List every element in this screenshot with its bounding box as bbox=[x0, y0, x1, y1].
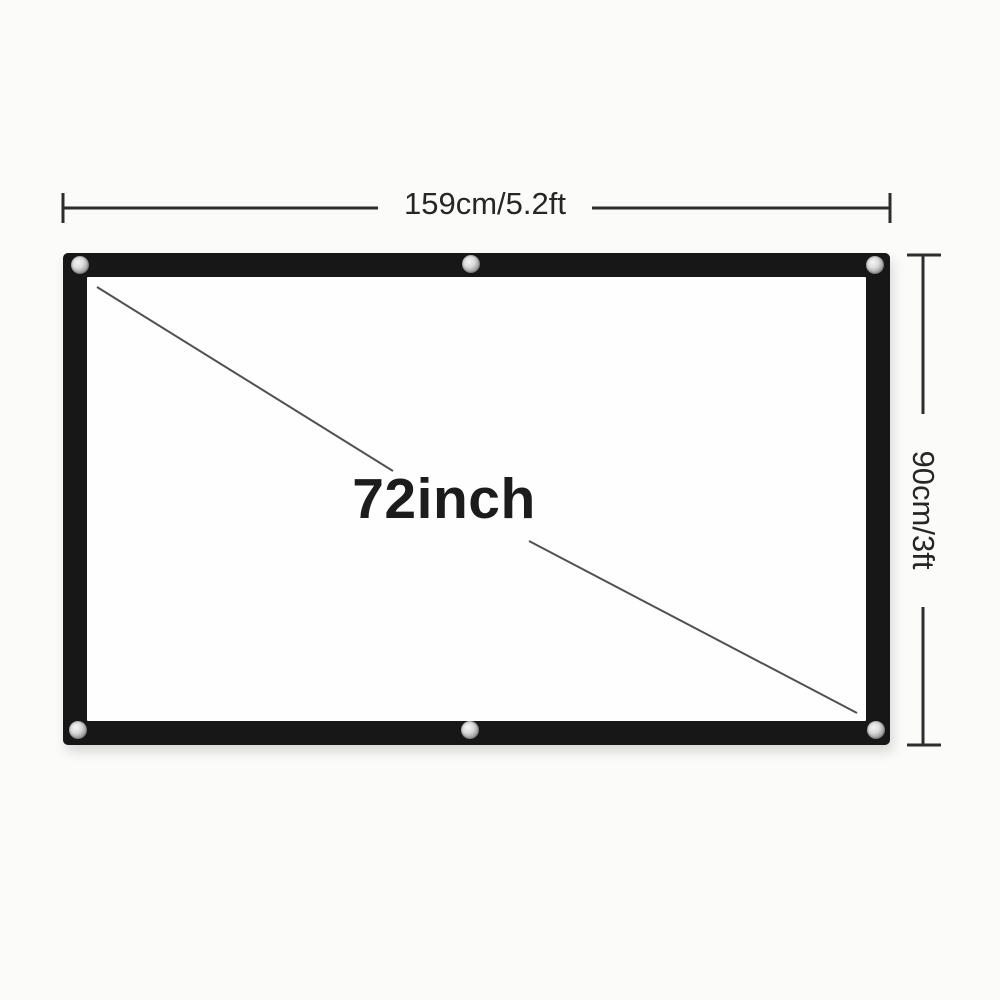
grommet-icon bbox=[866, 256, 884, 274]
grommet-icon bbox=[867, 721, 885, 739]
height-dimension-label: 90cm/3ft bbox=[905, 451, 941, 570]
grommet-icon bbox=[461, 721, 479, 739]
product-diagram: 159cm/5.2ft 90cm/3ft 72inch bbox=[0, 0, 1000, 1000]
grommet-icon bbox=[462, 255, 480, 273]
grommet-icon bbox=[71, 256, 89, 274]
grommet-icon bbox=[69, 721, 87, 739]
width-dimension-label: 159cm/5.2ft bbox=[404, 186, 566, 222]
diagonal-size-label: 72inch bbox=[352, 466, 536, 532]
